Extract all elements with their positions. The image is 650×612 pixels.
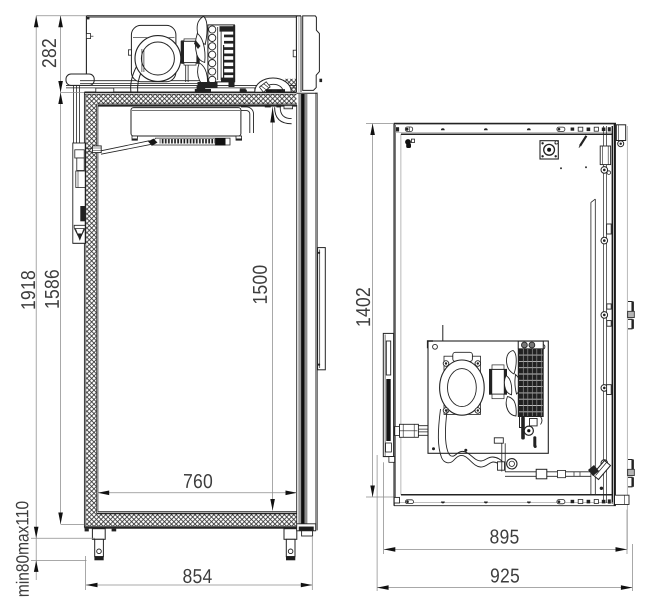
svg-text:1918: 1918	[17, 270, 40, 310]
svg-text:925: 925	[490, 564, 520, 587]
svg-text:854: 854	[182, 565, 212, 588]
svg-text:895: 895	[489, 525, 519, 548]
svg-text:min80max110: min80max110	[12, 501, 33, 597]
svg-text:1500: 1500	[249, 264, 272, 304]
svg-text:1586: 1586	[41, 269, 64, 309]
svg-text:282: 282	[38, 38, 61, 68]
svg-text:1402: 1402	[352, 287, 375, 327]
svg-text:760: 760	[183, 470, 213, 493]
